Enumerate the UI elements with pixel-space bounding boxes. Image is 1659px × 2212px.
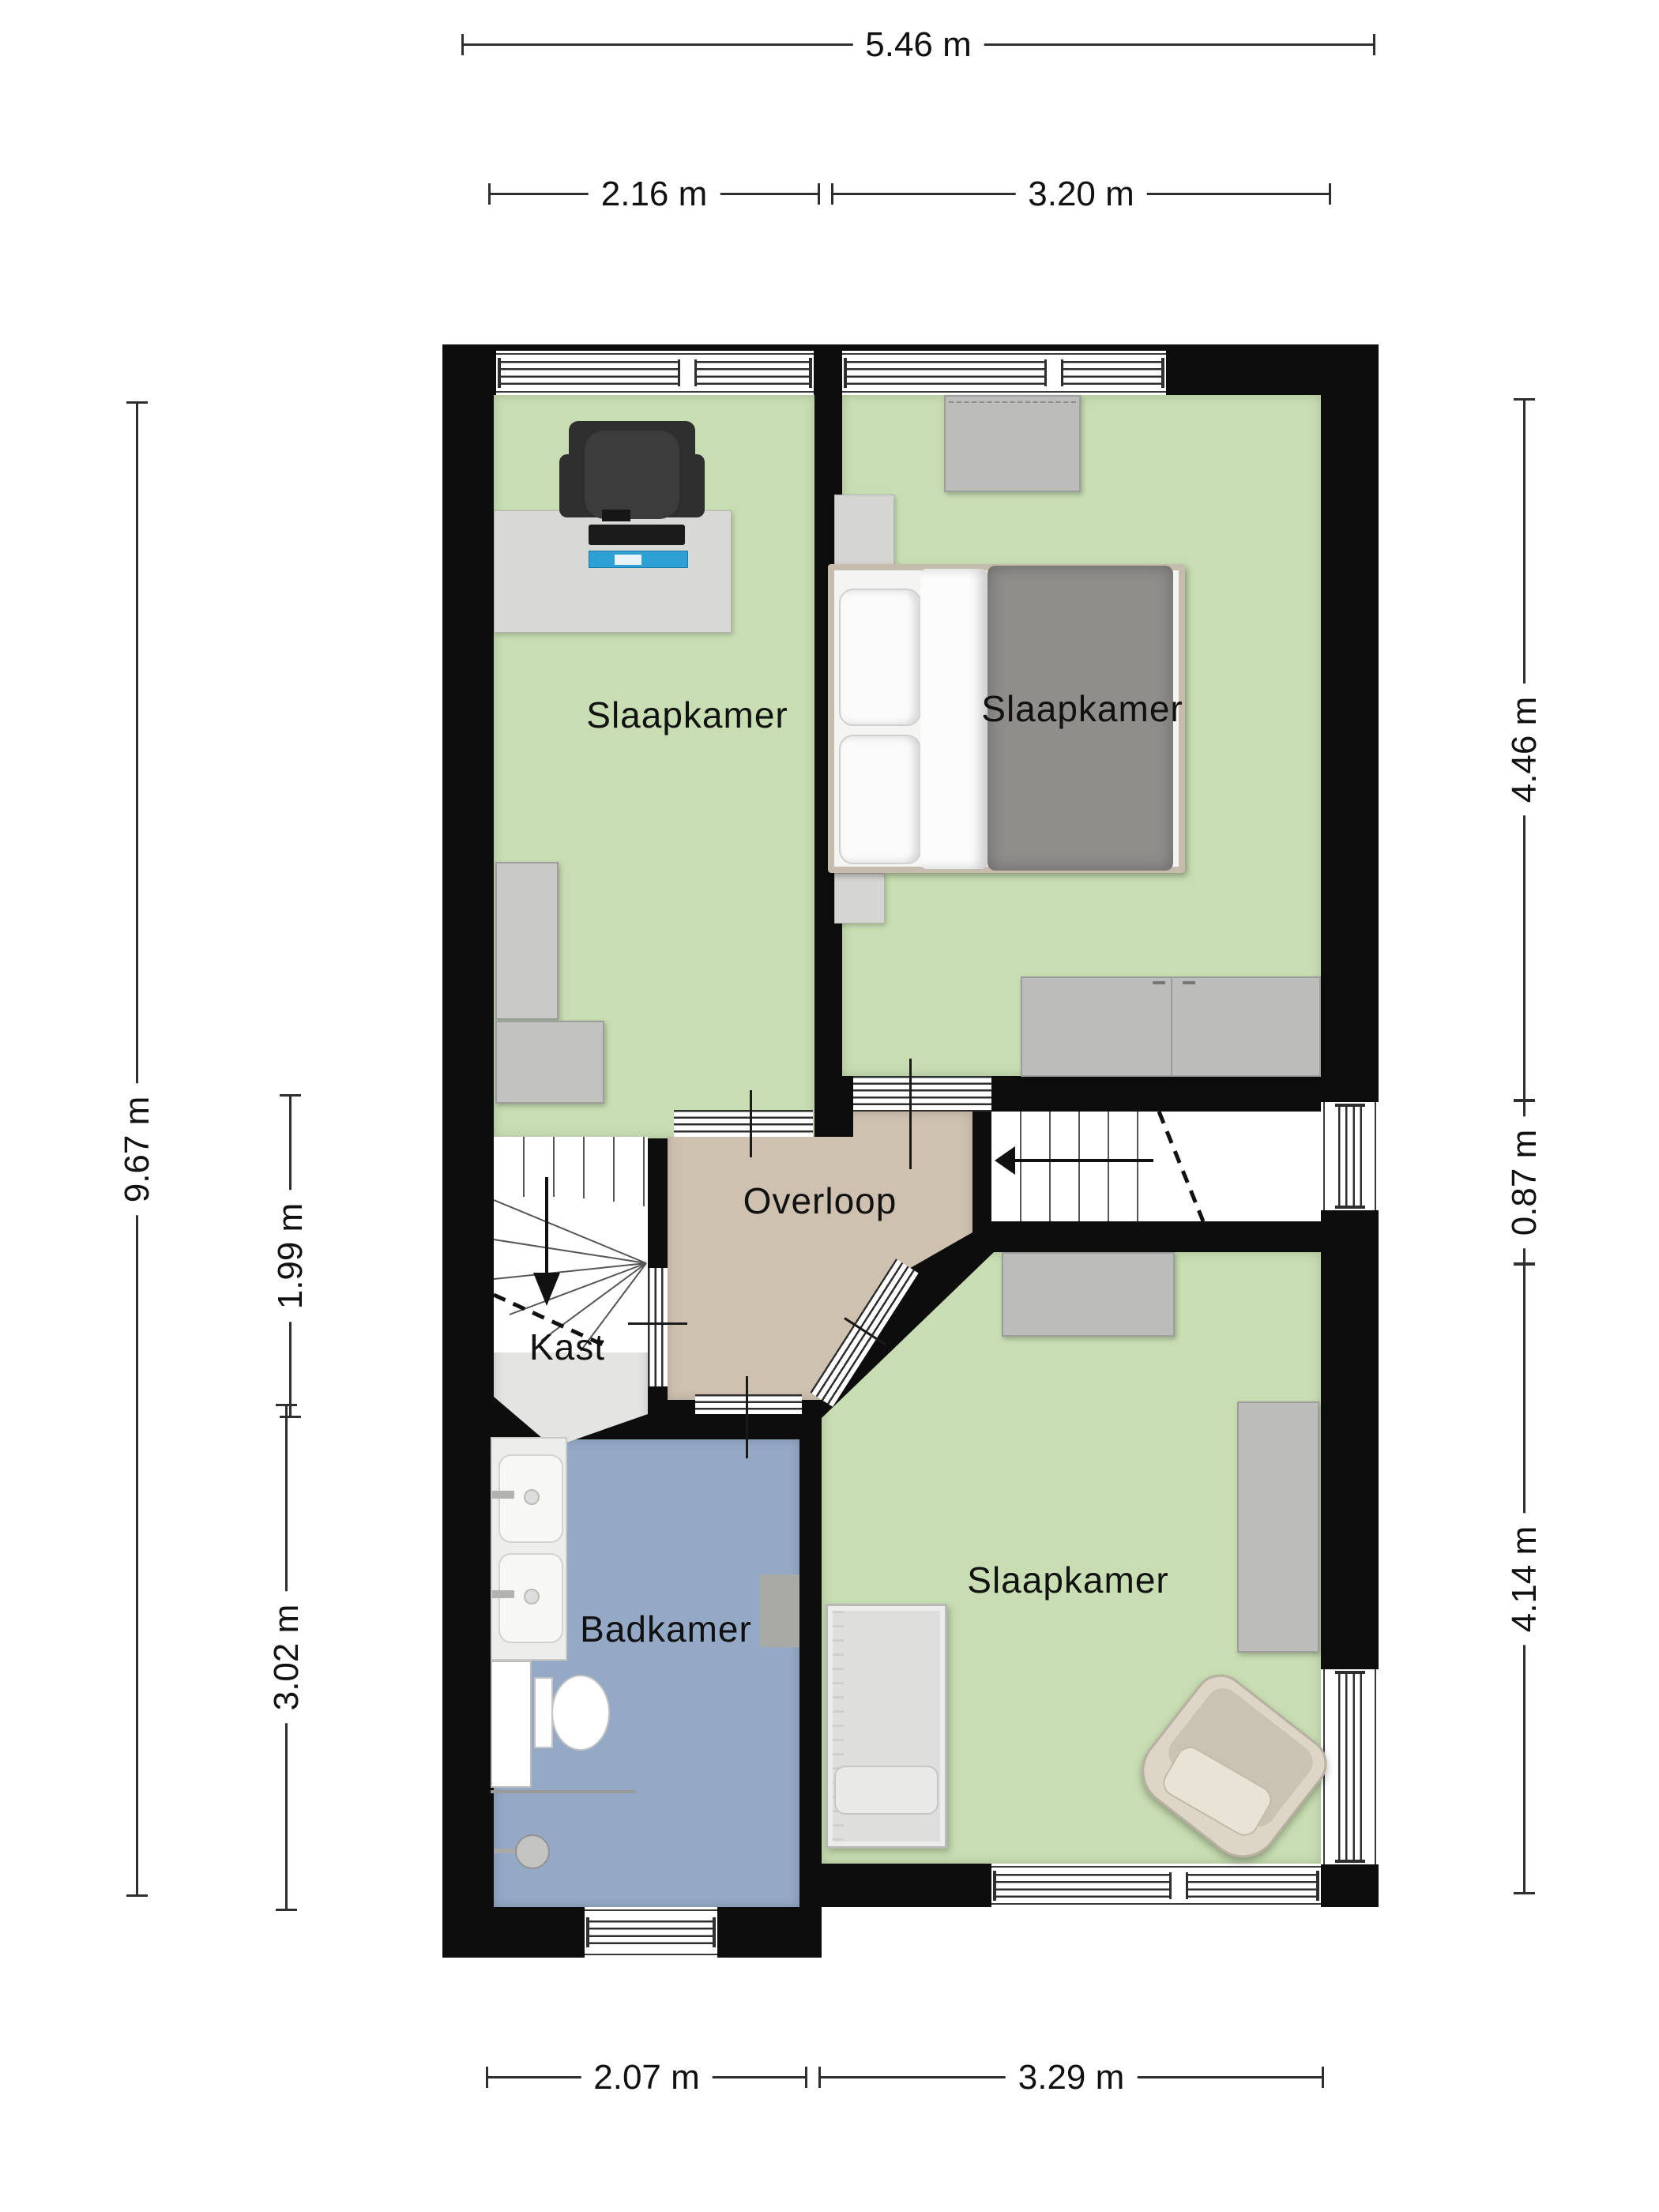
stair-cut-dashed-line (1159, 1112, 1203, 1221)
dimension-label: 9.67 m (116, 1083, 159, 1215)
dimension-left-total: 9.67 m (136, 402, 138, 1896)
dimension-label: 0.87 m (1503, 1116, 1546, 1248)
dimension-label: 5.46 m (852, 24, 984, 66)
room-label-closet: Kast (529, 1326, 605, 1368)
window-top-left (496, 351, 814, 395)
desk-monitor (602, 510, 630, 521)
single-bed (826, 1604, 947, 1849)
dimension-label: 2.07 m (581, 2056, 713, 2099)
door-tick (746, 1376, 748, 1458)
room-label-landing: Overloop (743, 1179, 897, 1222)
staircase-down (494, 1137, 648, 1352)
dimension-top-right: 3.20 m (832, 193, 1330, 195)
dimension-right-middle: 0.87 m (1523, 1100, 1525, 1264)
nightstand (834, 873, 885, 924)
shower-head (515, 1834, 550, 1869)
door-bedroom-top-left (674, 1110, 813, 1137)
bed-sheet-fold (920, 569, 987, 869)
dimension-label: 4.46 m (1503, 684, 1546, 816)
desk-laptop (589, 551, 688, 568)
dimension-label: 3.29 m (1006, 2056, 1138, 2099)
dimension-label: 3.02 m (265, 1592, 308, 1724)
double-washbasin (491, 1437, 567, 1661)
toilet-cistern (534, 1677, 553, 1748)
window-top-right (842, 351, 1166, 395)
window-right-stairwell (1321, 1102, 1379, 1210)
door-bathroom (695, 1394, 802, 1414)
cabinet (495, 1021, 604, 1104)
floorplan-page: { "rooms": [ {"id": "bedroom-top-left", … (0, 0, 1659, 2212)
dimension-top-total: 5.46 m (462, 43, 1375, 46)
door-tick (628, 1322, 687, 1325)
faucet (492, 1491, 514, 1499)
faucet (492, 1590, 514, 1598)
shower-cabinet (491, 1661, 532, 1788)
bed-pillow (834, 1766, 939, 1815)
window-bottom-bathroom (585, 1907, 717, 1958)
dimension-bottom-right: 3.29 m (819, 2076, 1323, 2078)
bed-pillow (839, 735, 921, 864)
dresser (1002, 1252, 1175, 1337)
room-label-bedroom-top-right: Slaapkamer (981, 687, 1183, 730)
drain (524, 1589, 540, 1604)
door-tick (750, 1090, 752, 1157)
room-label-bathroom: Badkamer (580, 1608, 752, 1650)
dimension-top-left: 2.16 m (489, 193, 819, 195)
bed-pillow (839, 589, 921, 726)
dimension-left-middle: 1.99 m (289, 1095, 292, 1417)
dimension-label: 2.16 m (589, 173, 720, 216)
shower-glass-partition (491, 1790, 636, 1793)
nightstand (834, 495, 894, 575)
dimension-left-bottom: 3.02 m (285, 1405, 288, 1910)
window-bottom-bedroom (991, 1864, 1321, 1907)
room-label-bedroom-top-left: Slaapkamer (586, 694, 788, 736)
staircase-up-steps (991, 1112, 1321, 1221)
staircase-down-steps (494, 1137, 648, 1352)
dresser (944, 395, 1081, 492)
dimension-label: 4.14 m (1503, 1513, 1546, 1645)
desk-keyboard (589, 525, 685, 545)
door-bedroom-top-right (853, 1076, 991, 1112)
wardrobe (1237, 1401, 1319, 1653)
wardrobe-tall (495, 862, 559, 1020)
door-tick (909, 1059, 912, 1169)
dimension-bottom-left: 2.07 m (487, 2076, 807, 2078)
room-label-bedroom-bottom: Slaapkamer (967, 1559, 1168, 1601)
office-chair (585, 431, 679, 519)
radiator (760, 1574, 799, 1647)
dimension-right-top: 4.46 m (1523, 399, 1525, 1100)
stairs-up-arrow-icon (995, 1146, 1153, 1175)
dimension-label: 1.99 m (269, 1191, 312, 1322)
door-tick (844, 1318, 886, 1346)
drain (524, 1489, 540, 1505)
toilet-bowl (551, 1675, 610, 1751)
dimension-right-bottom: 4.14 m (1523, 1264, 1525, 1894)
floor-plan: Slaapkamer Slaapkamer Overloop Kast Badk… (442, 344, 1379, 1958)
stairs-down-arrow-icon (533, 1177, 560, 1306)
dimension-label: 3.20 m (1015, 173, 1147, 216)
door-stairs-landing (648, 1268, 668, 1386)
staircase-up (991, 1112, 1321, 1221)
wardrobe-double (1021, 976, 1321, 1077)
